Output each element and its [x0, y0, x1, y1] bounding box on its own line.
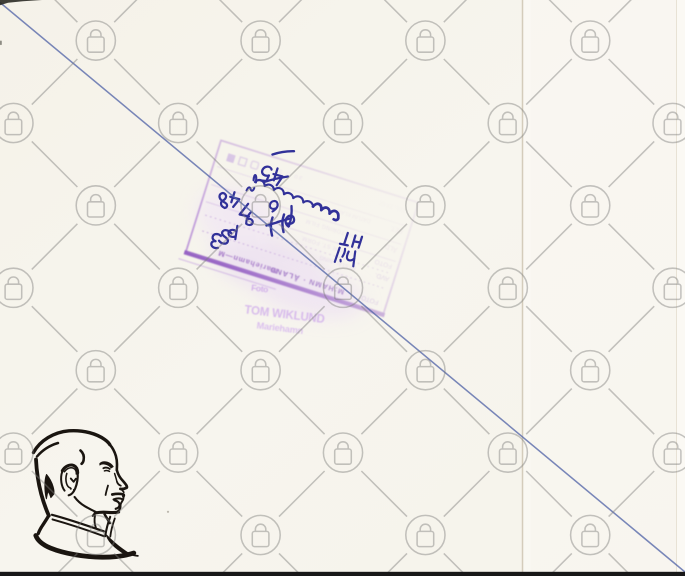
- svg-text:Foto: Foto: [251, 282, 269, 294]
